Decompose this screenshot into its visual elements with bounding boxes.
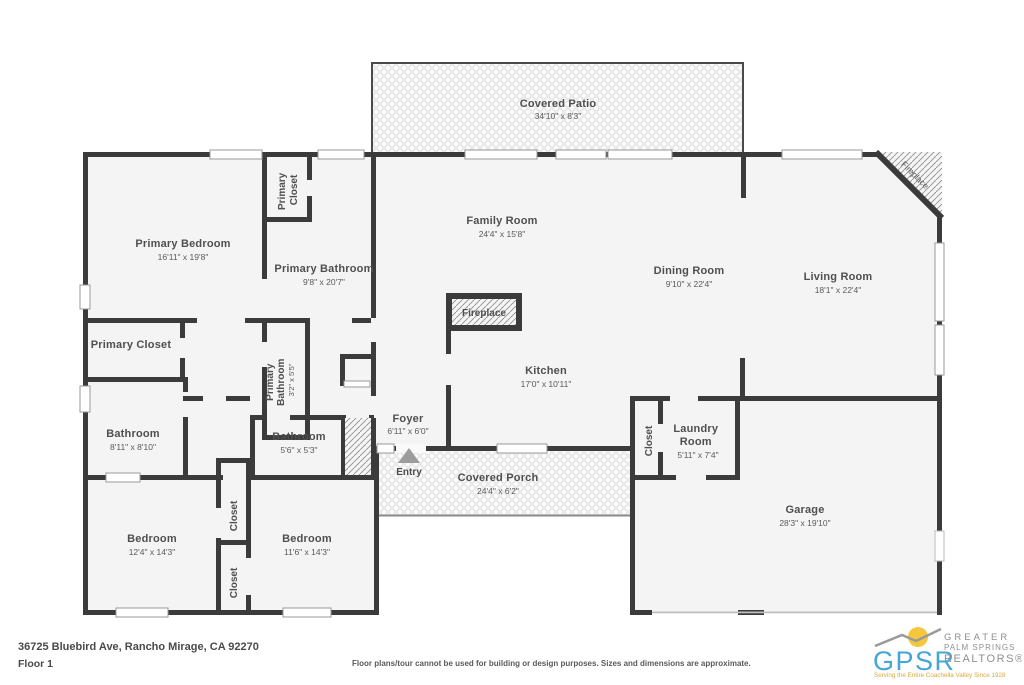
dims-bedroom-left: 12'4" x 14'3" — [129, 547, 176, 557]
label-closet-lower: Closet — [229, 567, 240, 598]
label-garage: Garage — [785, 504, 824, 516]
logo-tagline: Serving the Entire Coachella Valley Sinc… — [874, 672, 1006, 679]
dims-bathroom-small: 5'6" x 5'3" — [280, 445, 317, 455]
dims-bedroom-right: 11'6" x 14'3" — [284, 547, 330, 557]
disclaimer-text: Floor plans/tour cannot be used for buil… — [352, 659, 751, 668]
label-laundry-room: Laundry Room 5'11" x 7'4" — [673, 419, 722, 460]
dims-covered-patio: 34'10" x 8'3" — [535, 111, 582, 121]
floor-plan: Fireplace Fireplace Covered Patio 34'10"… — [0, 0, 1024, 683]
dims-kitchen: 17'0" x 10'11" — [521, 379, 572, 389]
dims-family-room: 24'4" x 15'8" — [479, 229, 526, 239]
label-closet-upper: Closet — [229, 500, 240, 531]
logo-line1: GREATER — [944, 632, 1010, 643]
dims-living-room: 18'1" x 22'4" — [815, 285, 862, 295]
fireplace-center-label: Fireplace — [462, 308, 506, 319]
mountains-icon — [875, 629, 941, 646]
gpsr-logo: GPSR GREATER PALM SPRINGS REALTORS® Serv… — [872, 626, 1022, 680]
dims-primary-bedroom: 16'11" x 19'8" — [158, 252, 209, 262]
dims-bathroom-hall: 8'11" x 8'10" — [110, 442, 156, 452]
dims-foyer: 6'11" x 6'0" — [387, 426, 428, 436]
label-bathroom-hall: Bathroom — [106, 428, 160, 440]
label-kitchen: Kitchen — [525, 365, 567, 377]
label-dining-room: Dining Room — [654, 265, 725, 277]
label-primary-closet-top: Primary Closet — [277, 170, 300, 210]
label-family-room: Family Room — [466, 215, 537, 227]
address-text: 36725 Bluebird Ave, Rancho Mirage, CA 92… — [18, 641, 259, 653]
label-covered-porch: Covered Porch — [458, 472, 539, 484]
label-bedroom-right: Bedroom — [282, 533, 332, 545]
label-primary-closet-left: Primary Closet — [91, 339, 172, 351]
shower-area — [345, 418, 371, 475]
floor-label: Floor 1 — [18, 658, 53, 670]
label-living-room: Living Room — [804, 271, 873, 283]
label-entry: Entry — [396, 467, 422, 478]
label-primary-bedroom: Primary Bedroom — [135, 238, 230, 250]
dims-covered-porch: 24'4" x 6'2" — [477, 486, 519, 496]
center-fireplace: Fireplace — [446, 293, 522, 331]
label-bedroom-left: Bedroom — [127, 533, 177, 545]
gpsr-logo-graphic: GPSR GREATER PALM SPRINGS REALTORS® Serv… — [872, 626, 1022, 680]
label-bathroom-small: Bathroom — [272, 431, 326, 443]
logo-line3: REALTORS® — [944, 653, 1022, 665]
dims-dining-room: 9'10" x 22'4" — [666, 279, 713, 289]
dims-primary-bathroom: 9'8" x 20'7" — [303, 277, 345, 287]
label-covered-patio: Covered Patio — [520, 98, 597, 110]
label-foyer: Foyer — [393, 413, 424, 425]
label-primary-bathroom: Primary Bathroom — [274, 263, 373, 275]
dims-garage: 28'3" x 19'10" — [779, 518, 830, 528]
label-closet-laundry: Closet — [644, 425, 655, 456]
logo-line2: PALM SPRINGS — [944, 643, 1015, 652]
